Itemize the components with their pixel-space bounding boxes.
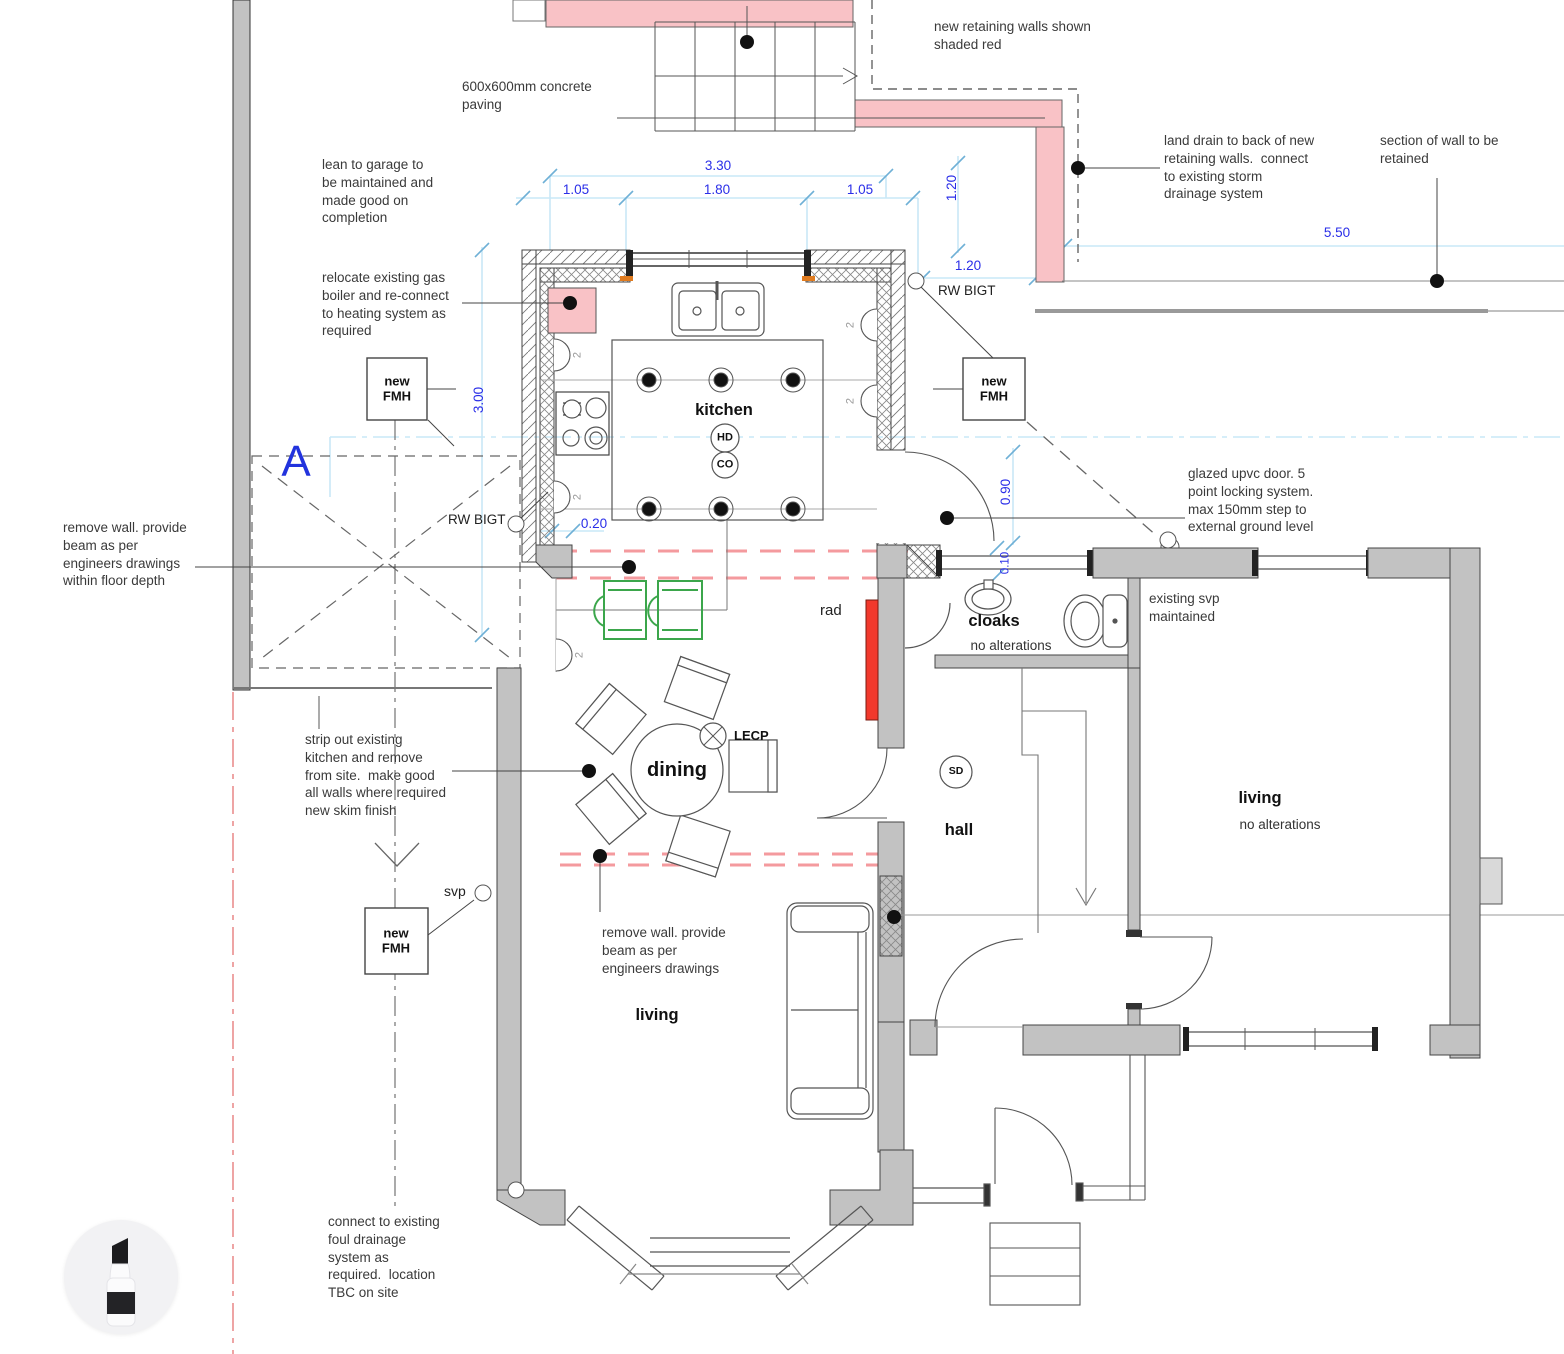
dining-table-set — [576, 657, 777, 877]
garage-walls — [233, 0, 492, 690]
cloaks-fixtures — [905, 580, 1127, 648]
svp-symbol — [1160, 532, 1176, 548]
hd-symbol-circle — [711, 424, 739, 452]
leader-dot — [582, 764, 596, 778]
retained-wall-section — [1035, 161, 1564, 311]
existing-walls — [910, 548, 1502, 1058]
marker-tool-button[interactable] — [64, 1220, 178, 1334]
retaining-walls — [513, 0, 1064, 282]
door-swings — [935, 937, 1212, 1185]
kitchen-window — [620, 250, 884, 503]
radiator — [866, 600, 878, 720]
porch — [990, 1055, 1145, 1305]
floor-plan-canvas: 600x600mm concrete paving new retaining … — [0, 0, 1564, 1354]
floor-plan-drawing — [0, 0, 1564, 1354]
paving-marker-dot — [740, 35, 754, 49]
kitchen-fixtures — [540, 281, 877, 672]
bay-window — [497, 1150, 990, 1290]
sofa — [787, 903, 873, 1119]
marker-pen-icon — [64, 1220, 178, 1334]
setting-out-lines — [252, 0, 1158, 1212]
dining-door-swing — [817, 748, 887, 818]
leader-dot — [593, 849, 607, 863]
wall-lights — [554, 309, 877, 671]
co-symbol-circle — [712, 452, 738, 478]
leader-dot — [887, 910, 901, 924]
glazed-door — [874, 451, 1185, 556]
leader-dot — [622, 560, 636, 574]
svp-symbol — [508, 1182, 524, 1198]
lecp-symbol — [700, 723, 726, 749]
staircase — [1022, 668, 1096, 933]
sd-symbol-circle — [940, 756, 972, 788]
